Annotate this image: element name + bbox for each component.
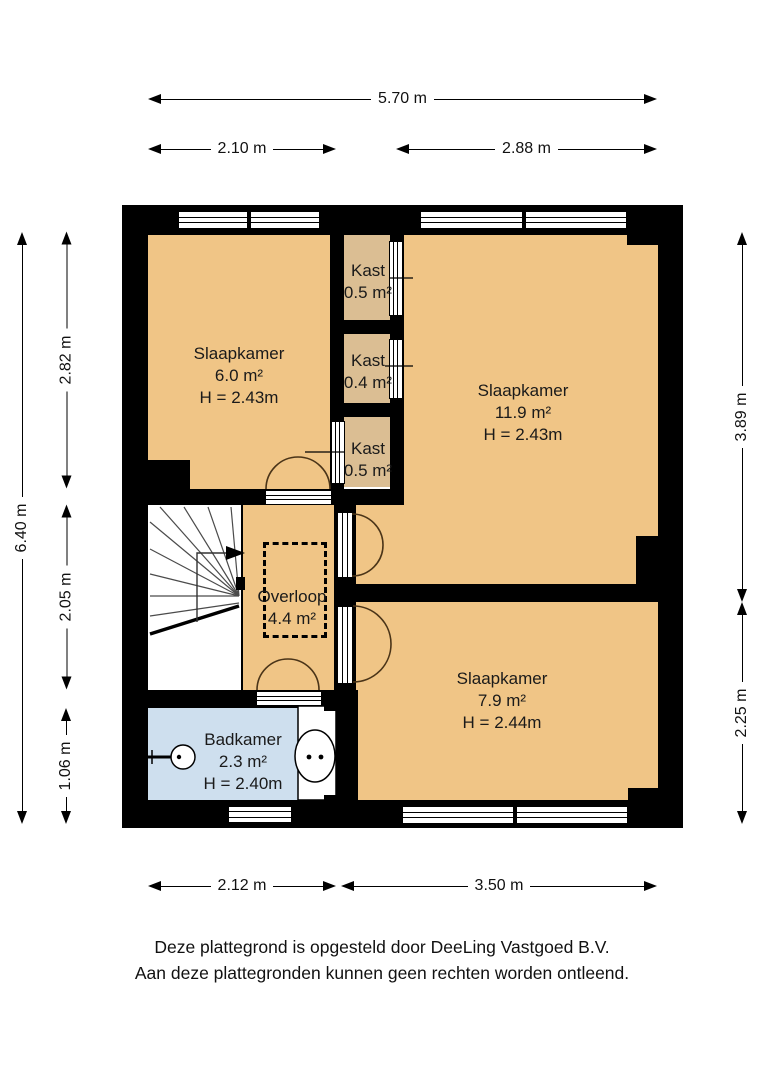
arrow-right-icon xyxy=(644,881,657,891)
room-name: Kast xyxy=(344,350,392,372)
arrow-right-icon xyxy=(62,231,72,244)
dim-label: 2.12 m xyxy=(211,877,274,895)
dim-line xyxy=(742,245,743,386)
dim-label: 2.88 m xyxy=(495,140,558,158)
room-label-bathroom: Badkamer 2.3 m² H = 2.40m xyxy=(204,729,283,795)
dim-left-total: 6.40 m xyxy=(12,232,32,824)
dim-label: 3.50 m xyxy=(468,877,531,895)
dim-line xyxy=(66,517,67,565)
dim-line xyxy=(273,149,323,150)
dim-top-total: 5.70 m xyxy=(148,89,657,109)
dim-line xyxy=(161,886,211,887)
room-label-closet-top: Kast 0.5 m² xyxy=(344,260,392,304)
arrow-right-icon xyxy=(17,232,27,245)
sink-icon xyxy=(146,745,195,769)
arrow-left-icon xyxy=(737,811,747,824)
dim-line xyxy=(742,615,743,682)
dim-label: 2.05 m xyxy=(58,566,76,629)
room-label-landing: Overloop 4.4 m² xyxy=(258,586,327,630)
dim-label: 3.89 m xyxy=(733,386,751,449)
dim-line xyxy=(742,448,743,589)
room-area: 4.4 m² xyxy=(258,608,327,630)
room-name: Kast xyxy=(344,260,392,282)
dim-line xyxy=(742,744,743,811)
arrow-left-icon xyxy=(61,811,71,824)
room-height: H = 2.43m xyxy=(478,424,569,446)
room-height: H = 2.40m xyxy=(204,773,283,795)
dim-line xyxy=(354,886,468,887)
dim-top-right: 2.88 m xyxy=(396,139,657,159)
arrow-left-icon xyxy=(62,677,72,690)
dim-line xyxy=(66,721,67,735)
dim-bottom-right: 3.50 m xyxy=(341,876,657,896)
room-name: Slaapkamer xyxy=(478,380,569,402)
dim-label: 2.10 m xyxy=(211,140,274,158)
room-area: 0.4 m² xyxy=(344,372,392,394)
arrow-right-icon xyxy=(323,144,336,154)
arrow-right-icon xyxy=(61,708,71,721)
room-area: 6.0 m² xyxy=(194,365,285,387)
room-area: 2.3 m² xyxy=(204,751,283,773)
arrow-right-icon xyxy=(737,232,747,245)
room-label-bedroom-top-right: Slaapkamer 11.9 m² H = 2.43m xyxy=(478,380,569,446)
arrow-left-icon xyxy=(396,144,409,154)
stairs-newel xyxy=(236,577,245,590)
arrow-right-icon xyxy=(62,504,72,517)
room-area: 11.9 m² xyxy=(478,402,569,424)
room-area: 7.9 m² xyxy=(457,690,548,712)
door-arc-bedroom-bottom-right xyxy=(353,606,391,682)
arrow-left-icon xyxy=(737,589,747,602)
arrow-right-icon xyxy=(644,94,657,104)
dim-label: 2.25 m xyxy=(733,682,751,745)
floorplan-page: Slaapkamer 6.0 m² H = 2.43m Slaapkamer 1… xyxy=(0,0,764,1080)
dim-label: 6.40 m xyxy=(13,497,31,560)
dim-top-left: 2.10 m xyxy=(148,139,336,159)
dim-left-top: 2.82 m xyxy=(57,232,77,489)
dim-right-top: 3.89 m xyxy=(732,232,752,602)
footer-line-1: Deze plattegrond is opgesteld door DeeLi… xyxy=(0,934,764,960)
dim-right-bottom: 2.25 m xyxy=(732,602,752,824)
room-area: 0.5 m² xyxy=(344,282,392,304)
dim-label: 5.70 m xyxy=(371,90,434,108)
dim-line xyxy=(161,149,211,150)
room-height: H = 2.44m xyxy=(457,712,548,734)
footer-line-2: Aan deze plattegronden kunnen geen recht… xyxy=(0,960,764,986)
dim-line xyxy=(161,99,371,100)
dim-line xyxy=(273,886,323,887)
dim-bottom-left: 2.12 m xyxy=(148,876,336,896)
footer-disclaimer: Deze plattegrond is opgesteld door DeeLi… xyxy=(0,934,764,986)
dim-line xyxy=(434,99,644,100)
dim-label: 2.82 m xyxy=(58,329,76,392)
dim-line xyxy=(22,245,23,497)
dim-left-bottom: 1.06 m xyxy=(56,708,76,824)
room-name: Slaapkamer xyxy=(194,343,285,365)
room-name: Badkamer xyxy=(204,729,283,751)
stairs-treads xyxy=(150,507,239,616)
room-name: Kast xyxy=(344,438,392,460)
room-label-closet-bottom: Kast 0.5 m² xyxy=(344,438,392,482)
room-name: Overloop xyxy=(258,586,327,608)
arrow-left-icon xyxy=(148,94,161,104)
dim-line xyxy=(22,559,23,811)
arrow-left-icon xyxy=(341,881,354,891)
dim-line xyxy=(66,628,67,676)
dim-left-middle: 2.05 m xyxy=(57,505,77,690)
plan-symbols-layer xyxy=(0,0,764,1080)
stairs-cut-line xyxy=(150,606,239,634)
arrow-left-icon xyxy=(62,476,72,489)
toilet-icon xyxy=(295,706,336,800)
arrow-right-icon xyxy=(644,144,657,154)
door-arc-bedroom-top-right xyxy=(352,514,383,576)
arrow-left-icon xyxy=(148,881,161,891)
arrow-left-icon xyxy=(17,811,27,824)
room-height: H = 2.43m xyxy=(194,387,285,409)
dim-line xyxy=(530,886,644,887)
door-arc-bathroom xyxy=(257,659,319,690)
room-label-closet-middle: Kast 0.4 m² xyxy=(344,350,392,394)
arrow-left-icon xyxy=(148,144,161,154)
room-area: 0.5 m² xyxy=(344,460,392,482)
arrow-right-icon xyxy=(323,881,336,891)
dim-line xyxy=(66,797,67,811)
dim-label: 1.06 m xyxy=(57,735,75,798)
room-label-bedroom-top-left: Slaapkamer 6.0 m² H = 2.43m xyxy=(194,343,285,409)
dim-line xyxy=(558,149,644,150)
dim-line xyxy=(66,244,67,328)
dim-line xyxy=(66,391,67,475)
door-arc-bedroom-top-left xyxy=(266,457,330,489)
dim-line xyxy=(409,149,495,150)
room-name: Slaapkamer xyxy=(457,668,548,690)
arrow-right-icon xyxy=(737,602,747,615)
room-label-bedroom-bottom-right: Slaapkamer 7.9 m² H = 2.44m xyxy=(457,668,548,734)
